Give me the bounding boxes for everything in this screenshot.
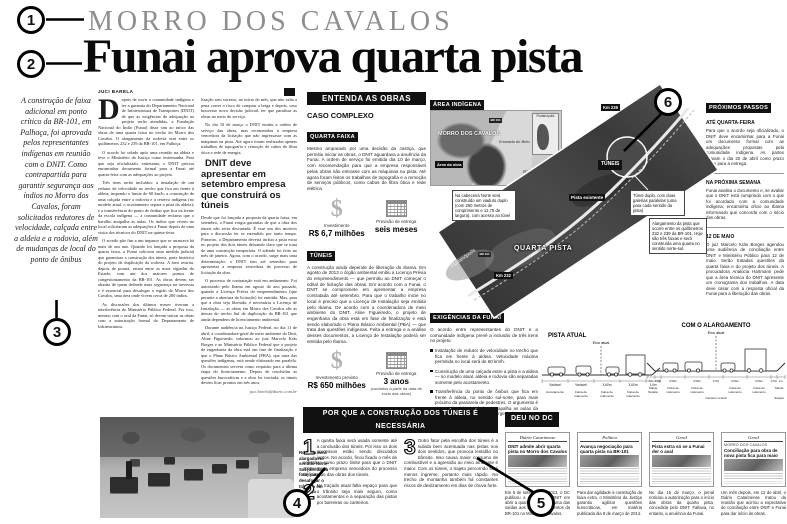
km-232-tag: Km 232: [494, 272, 513, 279]
aerial-photo-illustration: Florianópolis: [0, 0, 787, 524]
tunel-callout: Túnel duplo, com duas galerias paralelas…: [630, 190, 685, 216]
annotation-marker-1: 1: [17, 6, 45, 34]
annotation-marker-3: 3: [43, 318, 71, 346]
km-239-tag: Km 239: [601, 104, 620, 111]
annotation-marker-4: 4: [283, 489, 311, 517]
annotation-marker-5: 5: [527, 489, 555, 517]
br101-shield: BR 101: [478, 252, 491, 257]
quarta-pista-label: QUARTA PISTA: [514, 245, 572, 252]
annotation-marker-6: 6: [654, 88, 682, 116]
pista-existente-tag: Pista existente: [569, 194, 605, 201]
viaduto-callout: Na cabeceira Norte será construído um vi…: [452, 190, 516, 221]
tuneis-photo-tag: TÚNEIS: [598, 160, 622, 170]
alargamento-callout: Alargamento da pista que ocorre entre os…: [649, 218, 707, 254]
area-indigena-tag: ÁREA INDÍGENA: [430, 100, 484, 110]
annotation-marker-2: 2: [17, 50, 45, 78]
tunnel-magnifier-circle: [607, 137, 647, 177]
newspaper-page: Florianópolis MORRO DOS CAVALOS Funai ap…: [0, 0, 787, 524]
direction-arrow: [686, 94, 699, 110]
